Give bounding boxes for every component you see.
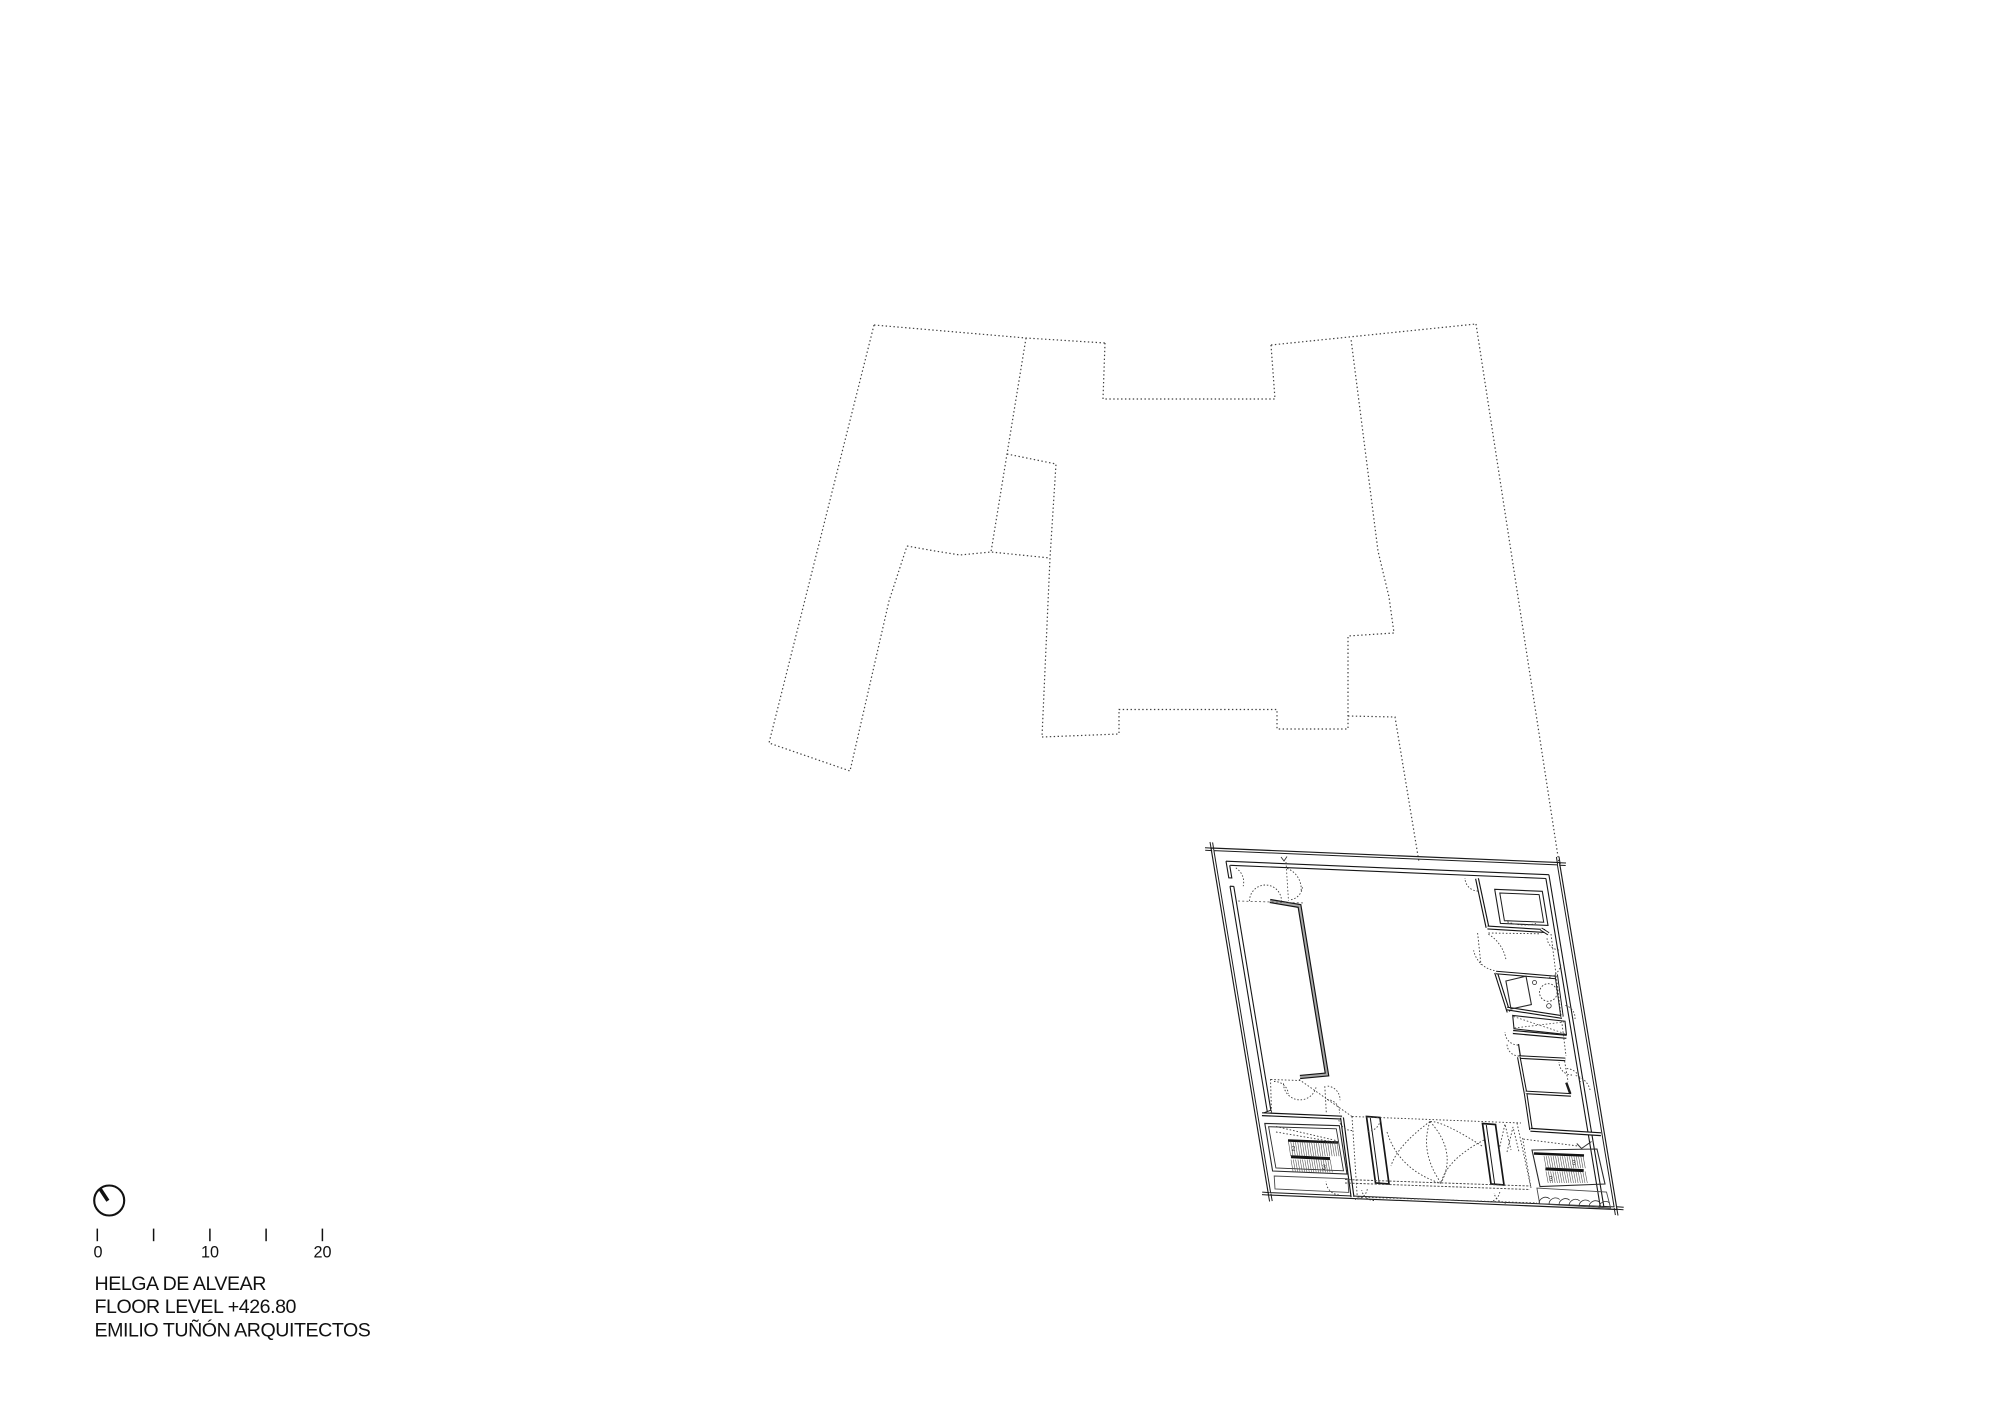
svg-text:20: 20 <box>314 1243 332 1261</box>
svg-text:3: 3 <box>1322 1165 1326 1172</box>
svg-text:2: 2 <box>1292 1146 1296 1153</box>
svg-text:HELGA DE ALVEAR: HELGA DE ALVEAR <box>95 1273 267 1295</box>
svg-text:0: 0 <box>94 1243 103 1261</box>
svg-text:EMILIO TUÑÓN ARQUITECTOS: EMILIO TUÑÓN ARQUITECTOS <box>95 1318 371 1342</box>
svg-text:3: 3 <box>1572 1160 1576 1167</box>
svg-text:3: 3 <box>1549 1176 1553 1183</box>
svg-text:FLOOR LEVEL +426.80: FLOOR LEVEL +426.80 <box>95 1296 297 1318</box>
svg-text:10: 10 <box>201 1243 219 1261</box>
